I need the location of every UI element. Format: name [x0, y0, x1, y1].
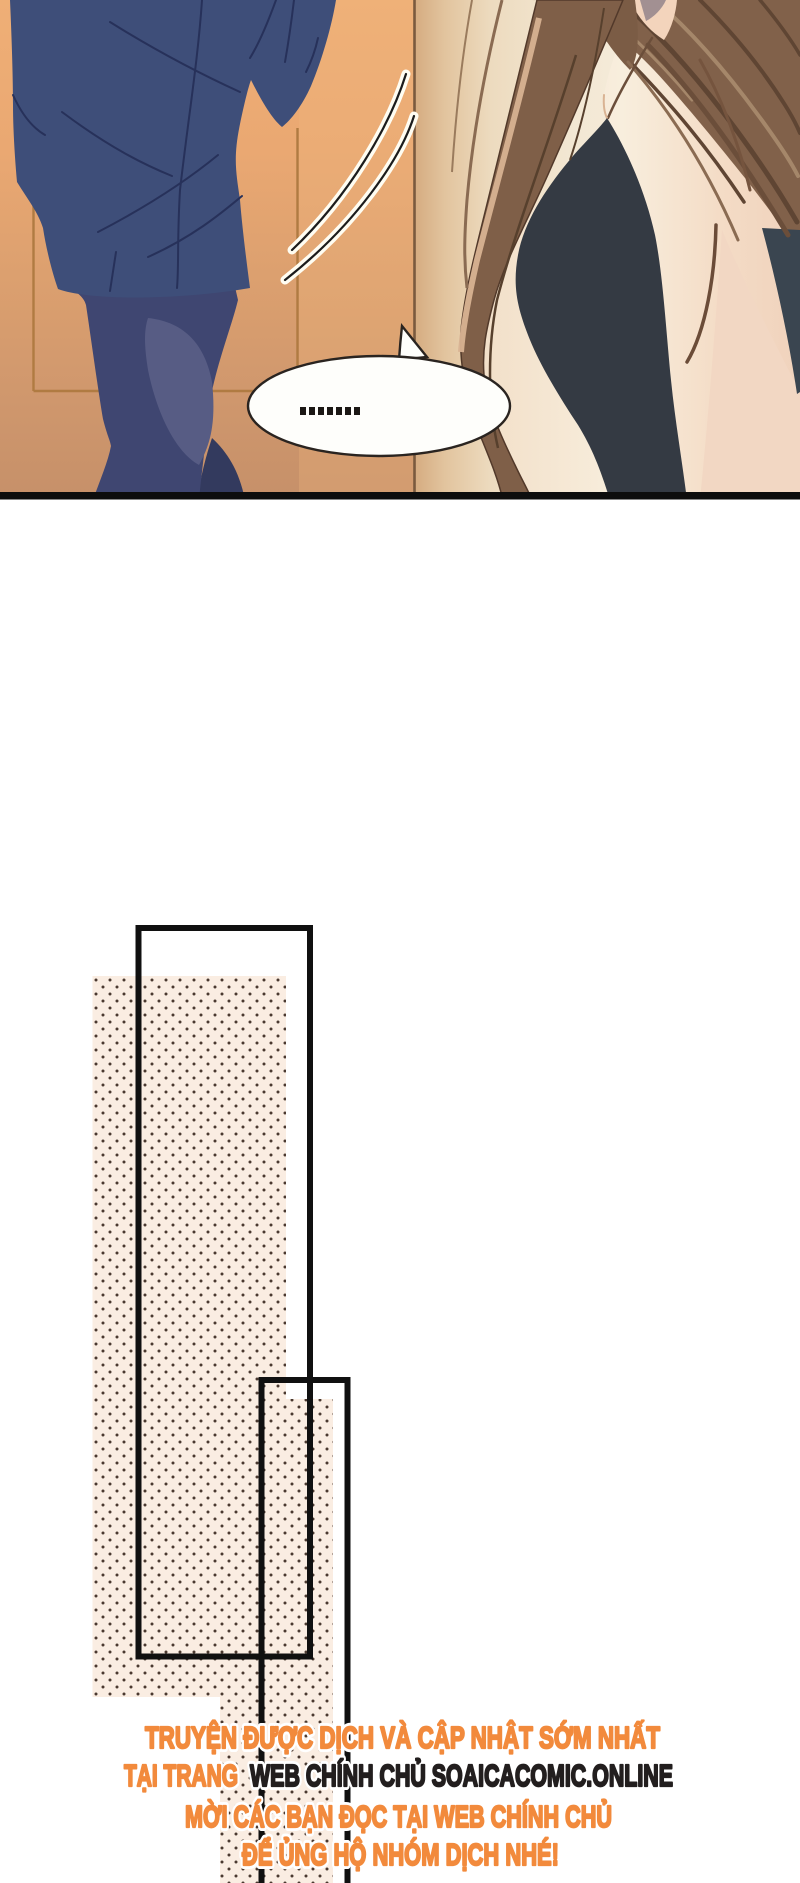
svg-text:MỜI CÁC BẠN ĐỌC TẠI WEB CHÍNH: MỜI CÁC BẠN ĐỌC TẠI WEB CHÍNH CHỦ	[185, 1798, 612, 1834]
svg-text:TẠI TRANG: TẠI TRANG	[124, 1758, 238, 1793]
svg-text:TRUYỆN ĐƯỢC DỊCH VÀ CẬP NHẬT S: TRUYỆN ĐƯỢC DỊCH VÀ CẬP NHẬT SỚM NHẤT	[145, 1719, 660, 1755]
svg-text:ĐỂ ỦNG HỘ NHÓM DỊCH NHÉ!: ĐỂ ỦNG HỘ NHÓM DỊCH NHÉ!	[242, 1836, 559, 1872]
svg-text:WEB CHÍNH CHỦ SOAICACOMIC.ONLI: WEB CHÍNH CHỦ SOAICACOMIC.ONLINE	[250, 1757, 673, 1793]
